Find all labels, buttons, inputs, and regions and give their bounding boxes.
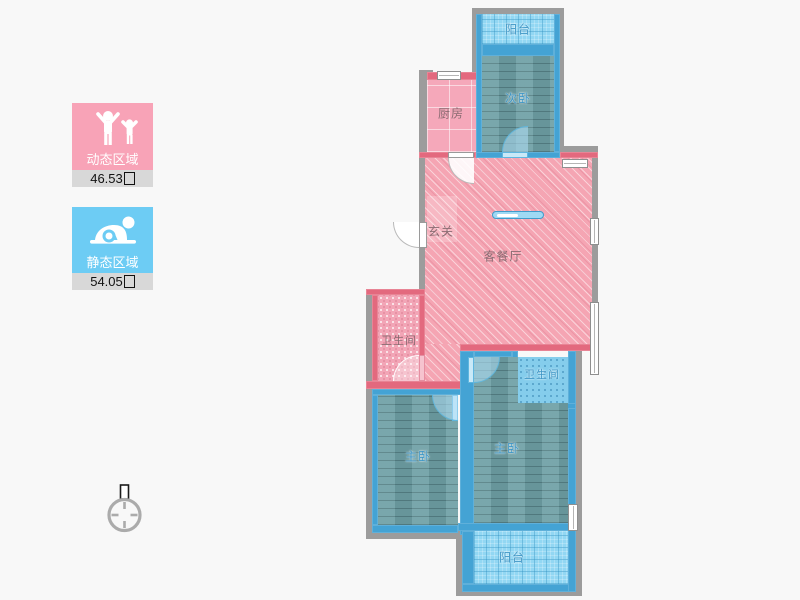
door-leaf [502, 152, 528, 158]
static-area-value: 54.05 [72, 273, 153, 290]
window [437, 71, 461, 80]
entrance-door-arc [393, 222, 419, 248]
wall [554, 14, 560, 152]
wall [482, 44, 554, 56]
wall [458, 523, 576, 531]
window [590, 302, 599, 375]
label-balcony-top: 阳台 [505, 21, 531, 38]
entrance-door-leaf [419, 222, 427, 248]
dynamic-area-value: 46.53 [72, 170, 153, 187]
wall [568, 351, 576, 592]
crawling-baby-icon [72, 207, 153, 255]
sqm-unit-glyph [124, 172, 135, 185]
wall [462, 584, 576, 592]
label-master-bedroom-left: 主卧 [405, 448, 431, 465]
window [568, 504, 578, 531]
compass-icon [102, 482, 148, 541]
label-bathroom-right: 卫生间 [524, 366, 560, 382]
dynamic-area-label: 动态区域 [86, 152, 138, 167]
label-living-dining: 客餐厅 [483, 248, 522, 265]
wall [456, 592, 582, 596]
wall [560, 8, 564, 152]
wall [366, 381, 463, 389]
label-master-bedroom-right: 主卧 [494, 440, 520, 457]
label-kitchen: 厨房 [438, 105, 464, 122]
wall [462, 531, 474, 584]
sqm-unit-glyph [124, 275, 135, 288]
window [562, 159, 588, 168]
room-living-dining-strip[interactable] [425, 344, 460, 381]
dynamic-area-card[interactable]: 动态区域 [72, 103, 153, 170]
people-icon [72, 103, 153, 152]
label-entry: 玄关 [428, 223, 454, 240]
label-bathroom-left: 卫生间 [381, 332, 417, 348]
label-secondary-bedroom: 次卧 [505, 90, 531, 107]
label-balcony-bottom: 阳台 [499, 549, 525, 566]
window [590, 218, 599, 245]
sliding-window [492, 211, 544, 219]
wall [576, 351, 582, 592]
static-area-card[interactable]: 静态区域 [72, 207, 153, 273]
door-leaf [419, 355, 425, 381]
floorplan-viewer: 动态区域 46.53 静态区域 54.05 [0, 0, 800, 600]
wall [372, 525, 458, 533]
static-area-label: 静态区域 [86, 255, 138, 270]
wall [366, 533, 458, 539]
wall [419, 70, 427, 158]
wall [460, 344, 598, 351]
